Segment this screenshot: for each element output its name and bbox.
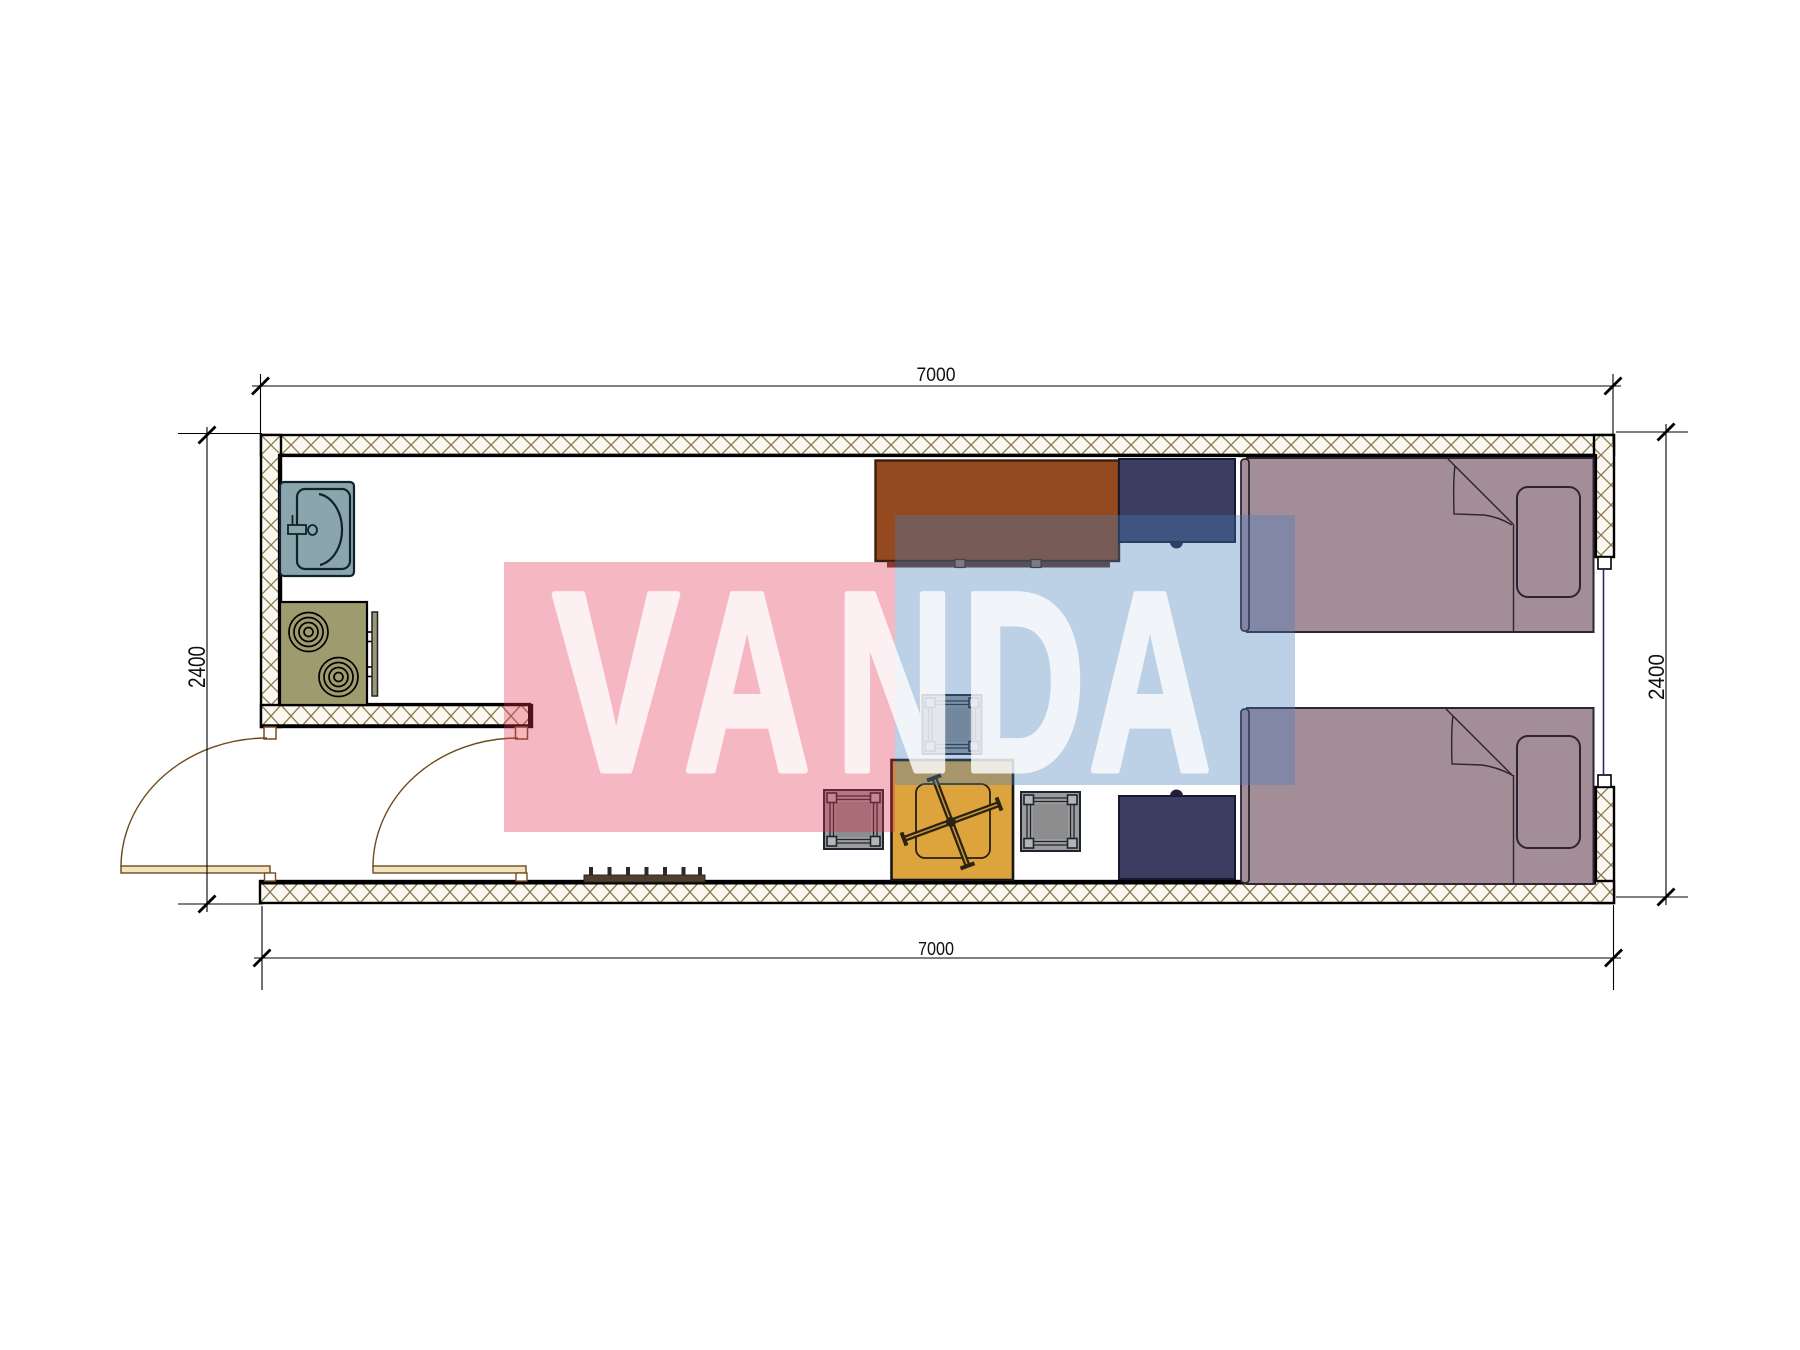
svg-text:2400: 2400 bbox=[1644, 654, 1669, 700]
svg-text:2400: 2400 bbox=[184, 646, 211, 688]
svg-text:A: A bbox=[1089, 540, 1211, 825]
svg-text:N: N bbox=[836, 540, 954, 825]
svg-text:D: D bbox=[962, 540, 1085, 825]
svg-text:7000: 7000 bbox=[918, 939, 954, 959]
svg-text:A: A bbox=[684, 540, 810, 825]
svg-text:V: V bbox=[553, 540, 679, 825]
svg-text:7000: 7000 bbox=[917, 365, 956, 386]
